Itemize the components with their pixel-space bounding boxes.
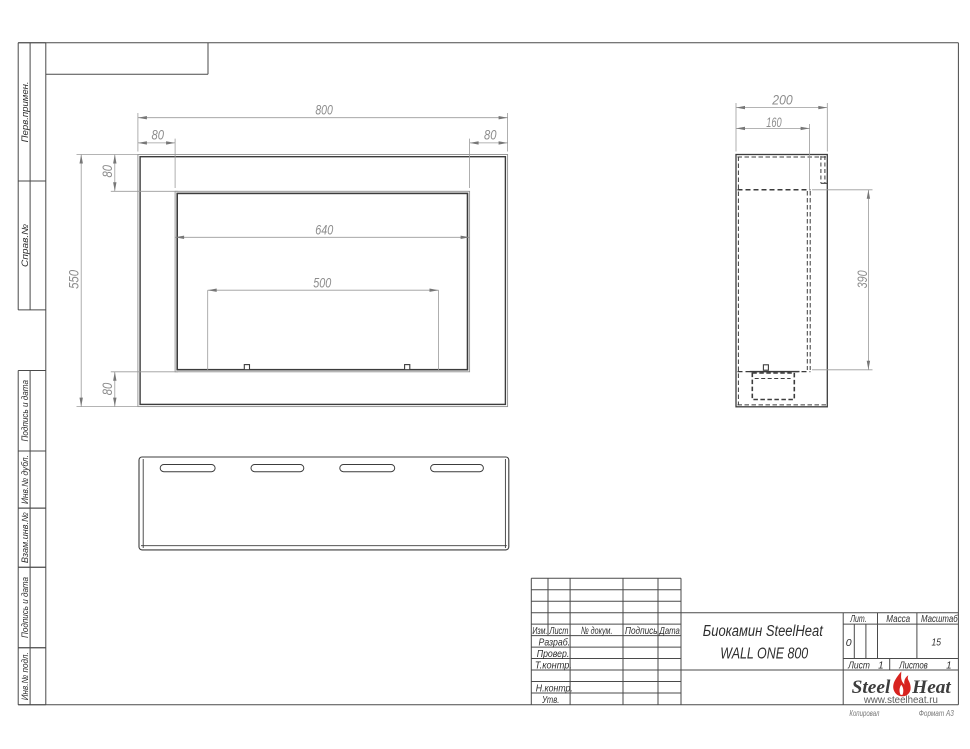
svg-text:80: 80 <box>484 126 497 142</box>
svg-text:640: 640 <box>315 221 333 237</box>
svg-text:Утв.: Утв. <box>541 694 559 706</box>
svg-text:15: 15 <box>932 636 942 648</box>
svg-text:Лит.: Лит. <box>849 614 866 625</box>
svg-text:Справ.№: Справ.№ <box>20 224 30 267</box>
svg-text:Т.контр.: Т.контр. <box>535 660 572 672</box>
svg-text:www.steelheat.ru: www.steelheat.ru <box>863 694 938 706</box>
svg-text:Инв.№ подл.: Инв.№ подл. <box>20 652 30 700</box>
svg-text:80: 80 <box>99 383 115 396</box>
svg-text:Перв.примен.: Перв.примен. <box>20 81 30 142</box>
svg-text:1: 1 <box>946 661 951 672</box>
svg-text:Инв.№ дубл.: Инв.№ дубл. <box>20 455 30 504</box>
svg-text:500: 500 <box>313 274 331 290</box>
svg-text:Взам.инв.№: Взам.инв.№ <box>20 512 30 563</box>
svg-text:160: 160 <box>766 114 782 130</box>
svg-text:Листов: Листов <box>898 661 927 672</box>
svg-text:800: 800 <box>315 102 333 118</box>
svg-text:80: 80 <box>152 126 165 142</box>
svg-text:390: 390 <box>854 270 870 288</box>
svg-text:№ докум.: № докум. <box>581 625 613 637</box>
svg-text:Провер.: Провер. <box>537 648 570 660</box>
svg-text:Формат А3: Формат А3 <box>919 709 954 718</box>
svg-text:0: 0 <box>846 637 852 649</box>
svg-text:Подпись: Подпись <box>625 625 658 637</box>
svg-text:Копировал: Копировал <box>849 709 879 718</box>
svg-text:Подпись и дата: Подпись и дата <box>20 577 30 638</box>
svg-text:WALL ONE 800: WALL ONE 800 <box>720 645 808 662</box>
svg-text:80: 80 <box>99 165 115 178</box>
svg-text:200: 200 <box>771 92 792 108</box>
svg-text:Дата: Дата <box>659 625 680 637</box>
svg-text:Разраб.: Разраб. <box>539 637 571 649</box>
svg-text:Масштаб: Масштаб <box>921 614 958 625</box>
svg-text:Лист: Лист <box>549 625 569 637</box>
svg-text:Подпись и дата: Подпись и дата <box>20 380 30 442</box>
svg-text:Масса: Масса <box>886 614 910 625</box>
svg-text:Изм.: Изм. <box>532 625 547 637</box>
svg-text:Н.контр.: Н.контр. <box>536 682 573 694</box>
svg-text:Биокамин SteelHeat: Биокамин SteelHeat <box>703 623 824 640</box>
svg-text:Лист: Лист <box>847 661 870 672</box>
svg-text:550: 550 <box>66 270 82 289</box>
svg-text:1: 1 <box>878 661 883 672</box>
